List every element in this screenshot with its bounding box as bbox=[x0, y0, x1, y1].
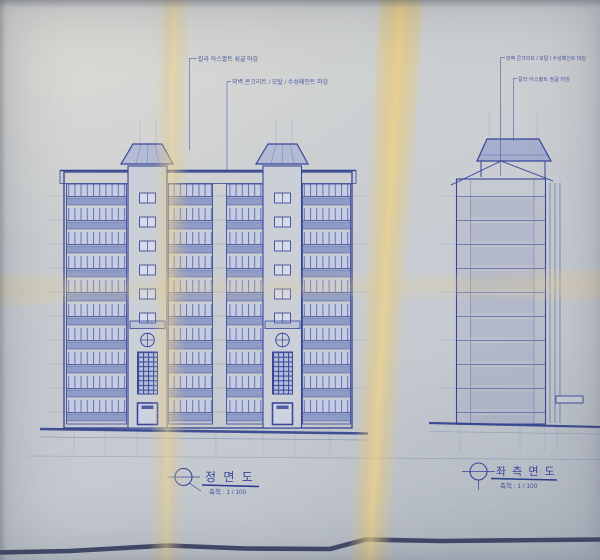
front-elevation-drawing bbox=[40, 144, 368, 440]
side-title-block: 좌 측 면 도 축척 : 1 / 100 bbox=[462, 463, 557, 490]
leader-line bbox=[227, 82, 231, 171]
stair-glazing-grid bbox=[273, 352, 293, 394]
annotation-label: 외벽 콘크리트 / 모탈 / 수성페인트 마감 bbox=[506, 55, 587, 62]
emblem-circle bbox=[141, 333, 155, 347]
balcony-bays bbox=[67, 184, 351, 424]
blueprint-drawing: 칼라 아스팔트 슁글 마감 외벽 콘크리트 / 모탈 / 수성페인트 마감 외벽… bbox=[0, 0, 600, 560]
annotation-left-1: 칼라 아스팔트 슁글 마감 bbox=[190, 55, 259, 150]
side-elevation-drawing bbox=[429, 139, 600, 434]
annotation-label: 외벽 콘크리트 / 모탈 / 수성페인트 마감 bbox=[232, 78, 329, 86]
emblem-circle bbox=[276, 333, 290, 347]
leader-line bbox=[190, 59, 198, 151]
title-underline bbox=[491, 479, 557, 481]
drawing-scale: 축척 : 1 / 100 bbox=[209, 487, 247, 496]
blueprint-photo-sheet: 칼라 아스팔트 슁글 마감 외벽 콘크리트 / 모탈 / 수성페인트 마감 외벽… bbox=[0, 0, 600, 560]
leader-line bbox=[514, 79, 518, 142]
rear-canopy bbox=[556, 396, 583, 403]
title-underline bbox=[202, 485, 259, 487]
stair-tower-left bbox=[121, 144, 173, 428]
drawing-scale: 축척 : 1 / 100 bbox=[500, 481, 538, 490]
sheet-border-line bbox=[0, 540, 600, 553]
annotation-right-2: 칼라 아스팔트 슁글 마감 bbox=[514, 75, 571, 141]
entrance-door bbox=[138, 403, 158, 425]
downpipes bbox=[550, 183, 560, 423]
ground-line bbox=[40, 429, 368, 434]
annotation-label: 칼라 아스팔트 슁글 마감 bbox=[198, 55, 259, 63]
drawing-title: 좌 측 면 도 bbox=[496, 465, 556, 478]
stair-tower-right bbox=[256, 144, 308, 428]
annotation-label: 칼라 아스팔트 슁글 마감 bbox=[518, 75, 570, 83]
front-title-block: 정 면 도 축척 : 1 / 100 bbox=[167, 469, 259, 497]
tower-roof-cap bbox=[477, 139, 551, 161]
entrance-door bbox=[273, 403, 293, 425]
stair-glazing-grid bbox=[138, 352, 158, 394]
drawing-title: 정 면 도 bbox=[205, 470, 255, 484]
